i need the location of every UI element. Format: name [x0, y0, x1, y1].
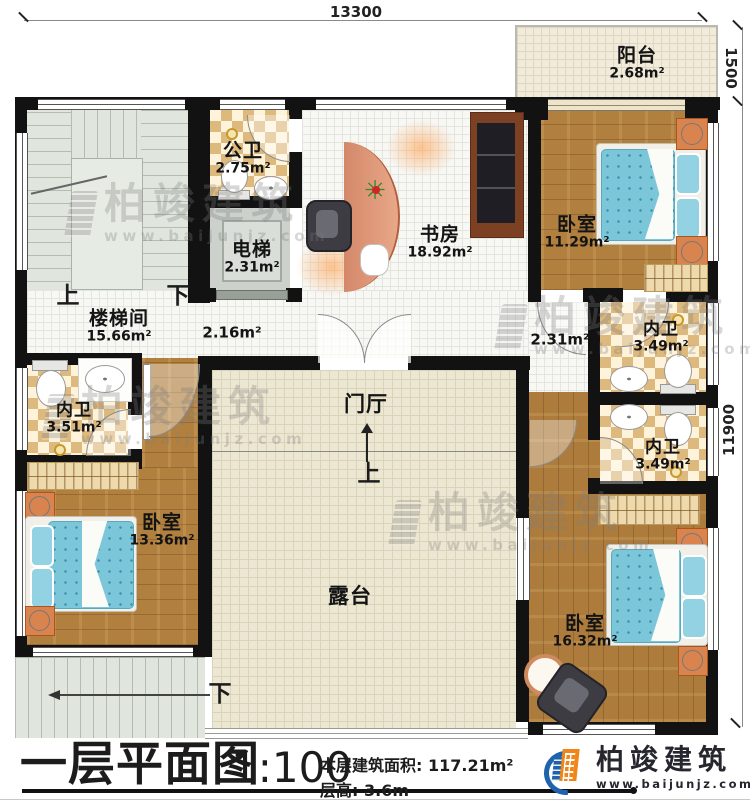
room-label-public-bath: 公卫 2.75m²	[215, 141, 270, 178]
room-name: 卧室	[544, 215, 609, 236]
wardrobe	[644, 264, 708, 292]
lamp	[681, 123, 703, 145]
pillow	[681, 555, 707, 597]
room-name: 阳台	[609, 46, 664, 67]
watermark-logo-icon	[494, 304, 528, 350]
watermark-url: www.baijunjz.com	[428, 536, 653, 554]
room-area: 16.32m²	[552, 635, 617, 651]
brand-logo-icon	[544, 745, 588, 793]
floor-plan-page: 13300 1500 11900	[0, 0, 750, 811]
room-area: 2.75m²	[215, 162, 270, 178]
room-area: 3.51m²	[46, 421, 101, 437]
watermark-name: 柏竣建筑	[81, 386, 306, 428]
outdoor-stairs	[15, 657, 205, 738]
wall	[198, 356, 320, 370]
room-name: 内卫	[635, 439, 690, 458]
dimension-tick	[732, 20, 743, 31]
bookcase-shelves	[477, 123, 515, 223]
lamp	[682, 650, 703, 671]
floor-height-value: 3.6m	[364, 781, 409, 800]
sink	[610, 366, 648, 392]
entry-arrow-head	[361, 423, 373, 433]
room-area: 2.16m²	[202, 325, 261, 342]
stair-down-label-outdoor: 下	[209, 674, 232, 708]
room-label-bath-se: 内卫 3.49m²	[635, 439, 690, 474]
dimension-height: 11900	[720, 404, 738, 456]
terrace-threshold-line	[212, 451, 516, 452]
area-label-hall-west: 2.16m²	[202, 325, 261, 342]
stair-treads	[71, 110, 141, 158]
chair-seat	[552, 676, 591, 715]
wall	[528, 97, 541, 302]
room-label-elevator: 电梯 2.31m²	[224, 240, 279, 277]
room-label-bedroom-ne: 卧室 11.29m²	[544, 215, 609, 252]
watermark-logo-icon	[64, 191, 98, 237]
brand-logo: 柏竣建筑 www.baijunjz.com	[544, 745, 750, 793]
window	[316, 99, 506, 110]
lamp	[681, 241, 703, 263]
room-label-bath-sw: 内卫 3.51m²	[46, 402, 101, 437]
window	[220, 99, 285, 110]
window	[707, 528, 719, 650]
watermark-url: www.baijunjz.com	[104, 227, 329, 245]
toilet	[664, 354, 692, 388]
window	[707, 123, 719, 261]
room-label-bath-ne: 内卫 3.49m²	[633, 321, 688, 356]
watermark-name: 柏竣建筑	[428, 492, 653, 534]
floor-light-glow	[386, 120, 456, 176]
room-name: 电梯	[224, 240, 279, 261]
room-area: 11.29m²	[544, 236, 609, 252]
stair-guide-line	[60, 694, 210, 696]
wall	[289, 97, 302, 119]
watermark: 柏竣建筑www.baijunjz.com	[392, 492, 653, 554]
room-area: 2.31m²	[224, 261, 279, 277]
room-area: 2.31m²	[530, 332, 589, 349]
window	[16, 368, 28, 450]
stool	[360, 244, 389, 276]
lamp	[29, 496, 50, 517]
brand-url: www.baijunjz.com	[596, 777, 750, 791]
stair-down-label: 下	[167, 276, 190, 310]
watermark: 柏竣建筑www.baijunjz.com	[68, 183, 329, 245]
pillow	[30, 567, 54, 609]
wall	[408, 356, 530, 370]
sink	[610, 404, 648, 430]
watermark: 柏竣建筑www.baijunjz.com	[498, 296, 750, 358]
room-label-stair-hall: 楼梯间 15.66m²	[86, 309, 151, 346]
wall-pier	[200, 288, 216, 302]
window	[707, 408, 719, 476]
room-area: 15.66m²	[86, 330, 151, 346]
area-label-hall-east: 2.31m²	[530, 332, 589, 349]
wall	[588, 392, 718, 405]
entry-up-label: 上	[358, 454, 381, 488]
room-label-bedroom-sw: 卧室 13.36m²	[129, 513, 194, 550]
bed	[606, 544, 708, 646]
room-name: 公卫	[215, 141, 270, 162]
dimension-balcony-depth: 1500	[722, 47, 740, 89]
room-label-balcony: 阳台 2.68m²	[609, 46, 664, 83]
brand-text-group: 柏竣建筑 www.baijunjz.com	[596, 745, 750, 791]
stair-treads	[27, 112, 71, 288]
wardrobe	[27, 462, 139, 490]
light-fixture	[226, 128, 238, 140]
pillow	[675, 153, 701, 195]
room-label-foyer: 门厅	[344, 393, 388, 417]
window	[16, 133, 28, 270]
watermark-name: 柏竣建筑	[104, 183, 329, 225]
plant-flower	[372, 186, 380, 194]
stair-arrow	[48, 690, 60, 700]
room-name: 书房	[407, 225, 472, 246]
lamp	[29, 610, 50, 631]
stair-up-label: 上	[57, 276, 80, 310]
room-name: 内卫	[46, 402, 101, 421]
building-area-label: 本层建筑面积:	[320, 756, 422, 775]
room-area: 18.92m²	[407, 246, 472, 262]
brand-name: 柏竣建筑	[596, 745, 750, 776]
pillow	[681, 597, 707, 639]
building-area-value: 117.21m²	[428, 756, 513, 775]
room-area: 3.49m²	[633, 340, 688, 356]
dimension-line-right	[742, 27, 743, 727]
elevator-doors	[216, 290, 288, 300]
logo-building-orange	[559, 749, 579, 781]
pillow	[675, 197, 701, 239]
watermark-url: www.baijunjz.com	[81, 430, 306, 448]
balcony-door-sill	[548, 99, 685, 111]
window	[33, 647, 193, 657]
room-area: 13.36m²	[129, 534, 194, 550]
window	[38, 99, 185, 110]
dimension-width: 13300	[330, 3, 382, 21]
room-label-terrace: 露台	[328, 585, 372, 609]
room-name: 露台	[328, 585, 372, 609]
plan-title: 一层平面图	[20, 741, 260, 788]
room-name: 楼梯间	[86, 309, 151, 330]
bed	[596, 143, 706, 245]
building-area-row: 本层建筑面积: 117.21m²	[320, 752, 513, 776]
room-name: 卧室	[129, 513, 194, 534]
dimension-tick	[730, 718, 741, 729]
pillow	[30, 525, 54, 567]
watermark-logo-icon	[388, 500, 422, 546]
room-name: 卧室	[552, 614, 617, 635]
window	[543, 724, 655, 735]
bookcase	[470, 112, 524, 238]
room-area: 3.49m²	[635, 458, 690, 474]
room-label-bedroom-se: 卧室 16.32m²	[552, 614, 617, 651]
floor-height-label: 层高:	[320, 781, 358, 800]
room-name: 门厅	[344, 393, 388, 417]
bed	[25, 516, 137, 612]
room-label-study: 书房 18.92m²	[407, 225, 472, 262]
room-area: 2.68m²	[609, 67, 664, 83]
room-name: 内卫	[633, 321, 688, 340]
floor-height-row: 层高: 3.6m	[320, 777, 409, 801]
wall-pier	[286, 288, 302, 302]
wall	[516, 600, 529, 722]
